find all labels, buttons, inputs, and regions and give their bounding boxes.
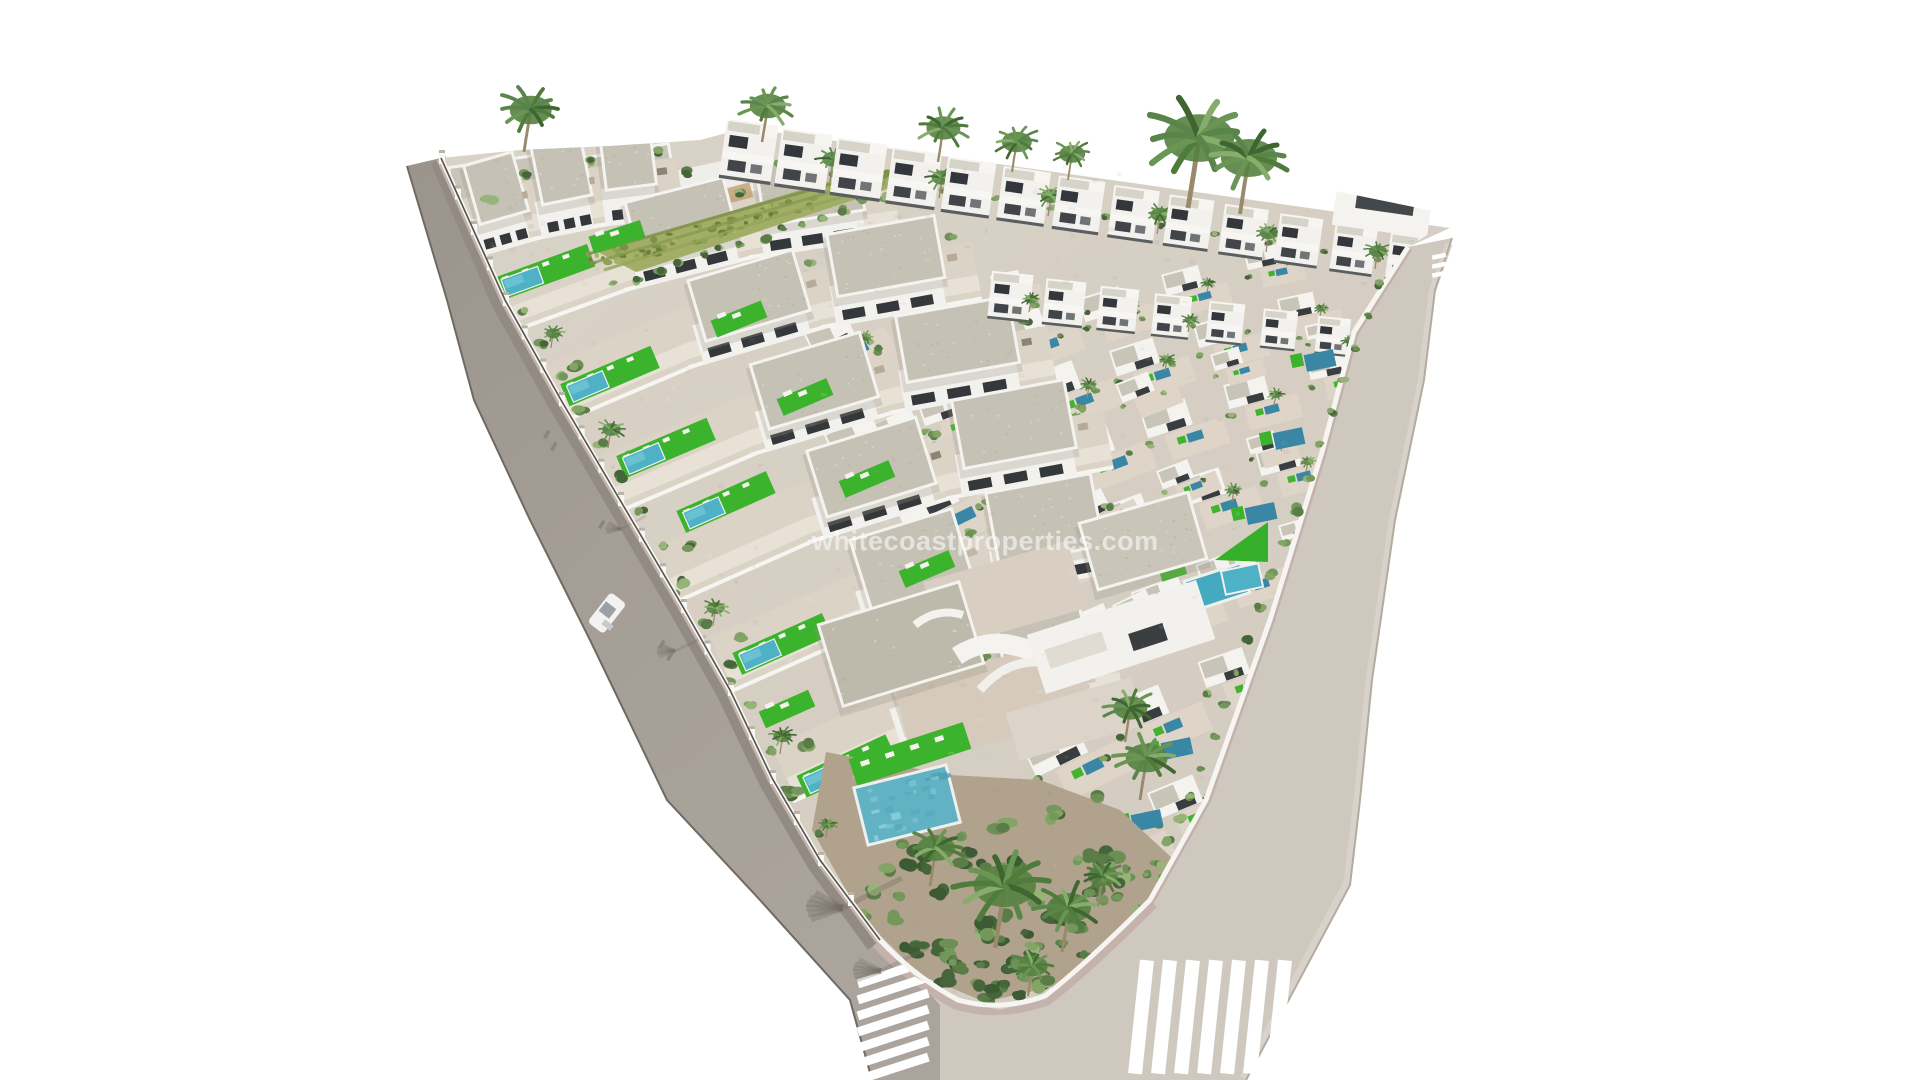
svg-text:whitecoastproperties.com: whitecoastproperties.com (811, 526, 1159, 556)
